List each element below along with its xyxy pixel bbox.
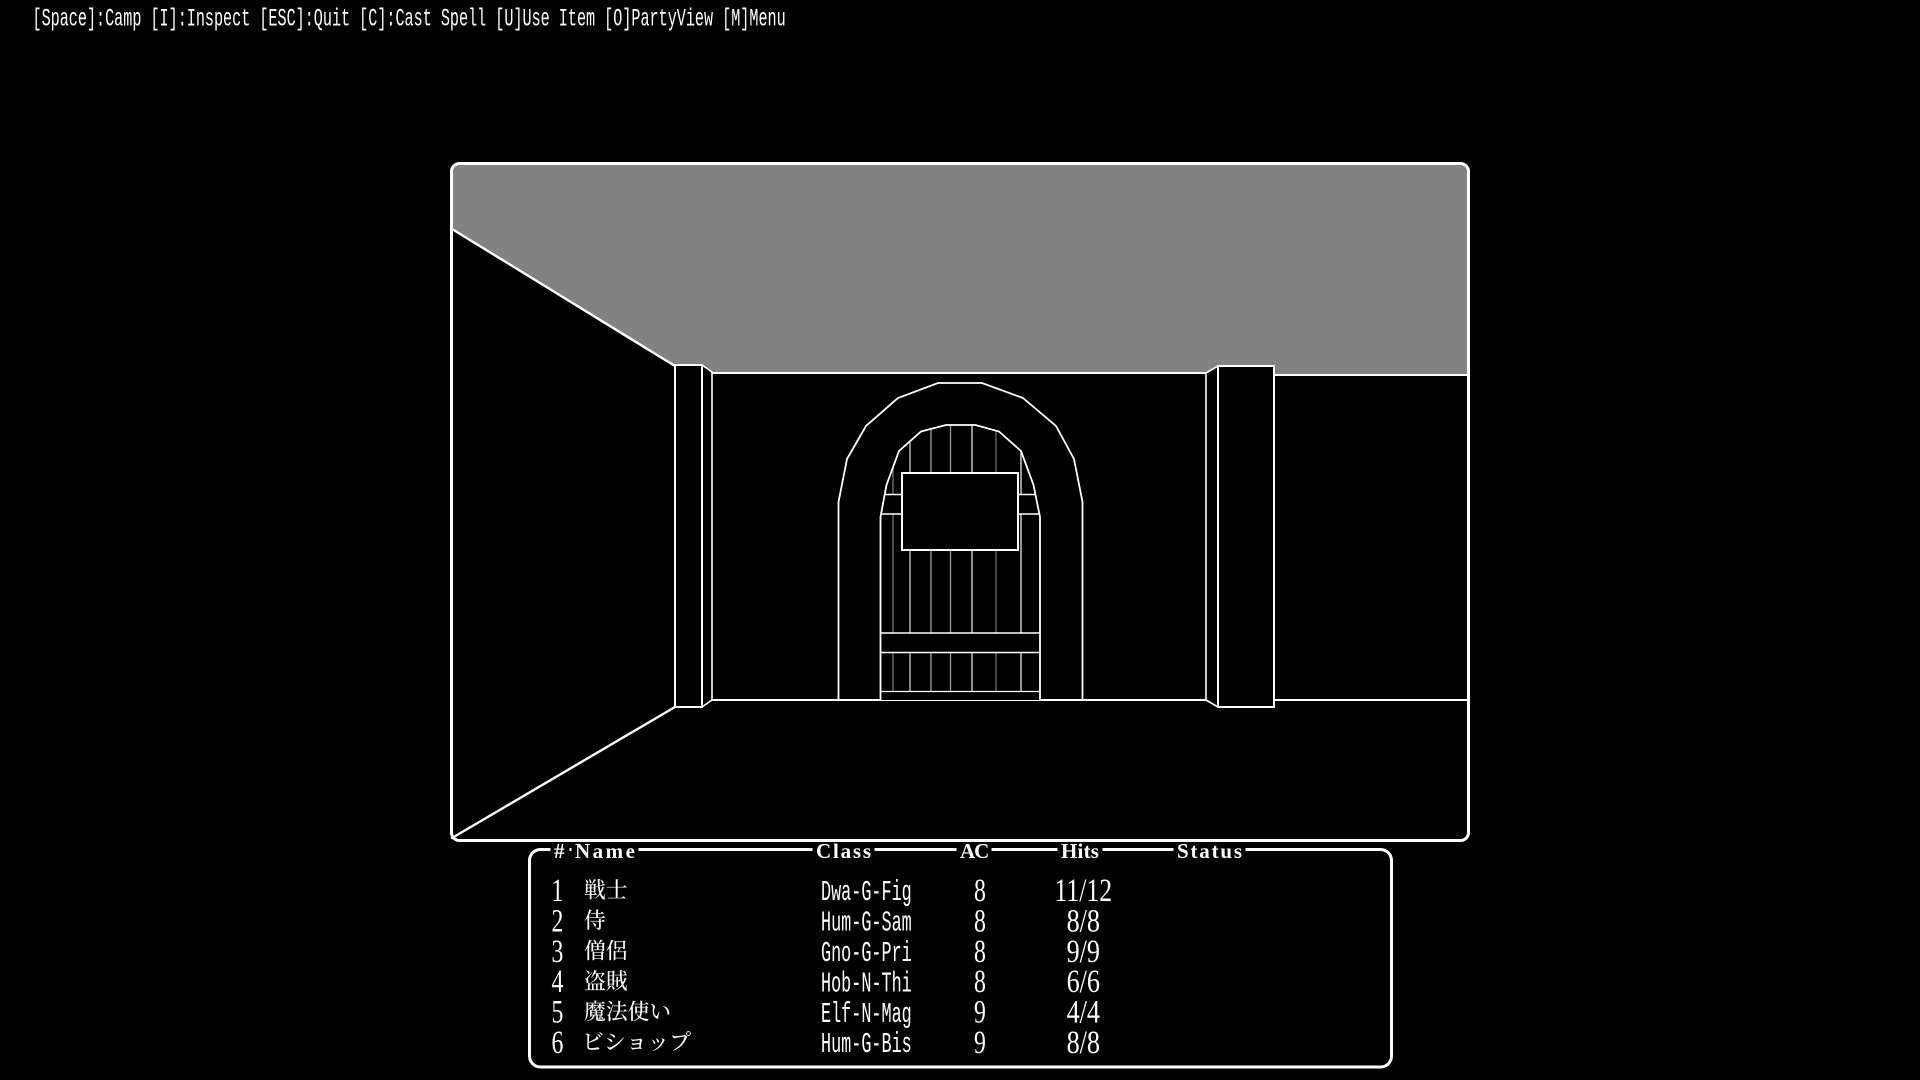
svg-text:Class: Class — [816, 839, 873, 863]
svg-text:Hum-G-Bis: Hum-G-Bis — [821, 1030, 912, 1062]
svg-text:Dwa-G-Fig: Dwa-G-Fig — [821, 878, 912, 910]
svg-text:Gno-G-Pri: Gno-G-Pri — [821, 939, 912, 971]
svg-text:9: 9 — [974, 1024, 986, 1061]
svg-text:[Space]:Camp [I]:Inspect [ESC]: [Space]:Camp [I]:Inspect [ESC]:Quit [C]:… — [33, 6, 786, 34]
svg-text:Elf-N-Mag: Elf-N-Mag — [821, 1000, 912, 1032]
svg-text:6: 6 — [552, 1024, 564, 1061]
svg-text:Hits: Hits — [1061, 839, 1099, 863]
svg-text:Hob-N-Thi: Hob-N-Thi — [821, 969, 912, 1001]
svg-text:Status: Status — [1177, 839, 1244, 863]
svg-text:AC: AC — [960, 839, 988, 863]
svg-text:#: # — [554, 839, 565, 863]
svg-text:8/8: 8/8 — [1067, 1024, 1100, 1061]
svg-text:Hum-G-Sam: Hum-G-Sam — [821, 909, 912, 941]
svg-text:Name: Name — [575, 839, 637, 863]
